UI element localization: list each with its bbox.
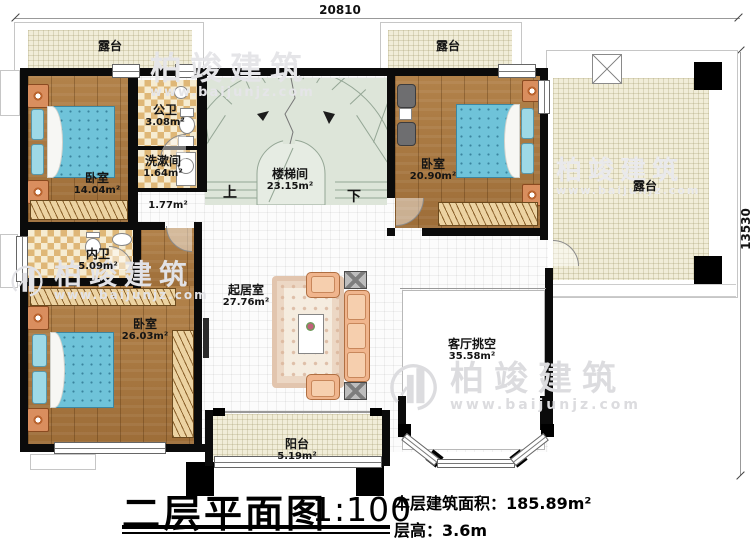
- door-stub: [213, 408, 225, 416]
- bay-window: [437, 459, 515, 468]
- stair-up-label: 上: [220, 186, 240, 202]
- void-boundary-line: [400, 288, 546, 289]
- side-table: [399, 108, 412, 120]
- room-label-living-room: 起居室 27.76m²: [210, 284, 282, 309]
- wall: [194, 222, 202, 452]
- flue-symbol-icon: [592, 54, 622, 84]
- room-label-terrace-right: 露台: [610, 180, 680, 193]
- window: [175, 64, 195, 78]
- pillow: [31, 144, 44, 175]
- sink: [174, 86, 188, 99]
- wall: [387, 228, 395, 236]
- window: [54, 442, 166, 454]
- wall: [138, 188, 197, 192]
- pillow: [32, 334, 47, 367]
- room-label-balcony: 阳台 5.19m²: [262, 438, 332, 463]
- living-void-floor: [402, 290, 545, 450]
- room-label-bedroom-top-right: 卧室 20.90m²: [398, 158, 468, 183]
- wall: [20, 222, 165, 230]
- sofa-cushion: [347, 294, 366, 320]
- room-label-ensuite-bath: 内卫 5.09m²: [68, 248, 128, 273]
- sink: [112, 233, 132, 246]
- dimension-line-right: [740, 52, 741, 476]
- wall: [197, 76, 207, 192]
- room-label-bedroom-bottom-left: 卧室 26.03m²: [110, 318, 180, 343]
- side-table: [344, 271, 367, 289]
- column: [694, 62, 722, 90]
- room-label-terrace-top-left: 露台: [75, 40, 145, 53]
- nightstand: [27, 408, 49, 432]
- wardrobe: [172, 330, 194, 438]
- flower-decor: [306, 322, 315, 331]
- ground-ledge: [30, 454, 96, 470]
- plan-title: 二层平面图: [122, 483, 327, 538]
- pillow: [521, 108, 534, 139]
- armchair: [397, 84, 416, 108]
- room-label-terrace-top-right: 露台: [413, 40, 483, 53]
- dimension-top-label: 20810: [295, 3, 385, 17]
- pillow: [521, 143, 534, 174]
- door-stub: [370, 408, 382, 416]
- ac-ledge: [0, 70, 20, 116]
- window: [498, 64, 536, 78]
- armchair-cushion: [311, 276, 335, 293]
- room-label-wash-room: 洗漱间 1.64m²: [133, 155, 193, 180]
- wall: [205, 410, 213, 466]
- pillow: [32, 371, 47, 404]
- bed-sheet: [504, 104, 520, 178]
- wardrobe: [438, 202, 538, 226]
- nightstand: [27, 84, 49, 108]
- nightstand: [27, 306, 49, 330]
- terrace-edge-line: [553, 284, 736, 285]
- wardrobe: [30, 288, 176, 306]
- sofa-cushion: [347, 352, 366, 378]
- floor-plan-canvas: 20810 13530: [0, 0, 750, 548]
- room-label-stair-hall: 楼梯间 23.15m²: [250, 168, 330, 193]
- window: [112, 64, 140, 78]
- wardrobe: [30, 200, 128, 220]
- pillow: [31, 109, 44, 140]
- side-table: [344, 382, 367, 400]
- wall: [382, 410, 390, 466]
- terrace-right-floor: [553, 78, 709, 280]
- floor-area-text: 本层建筑面积：185.89m²: [394, 490, 591, 514]
- tv: [203, 318, 209, 358]
- floor-height-text: 层高：3.6m: [394, 517, 487, 541]
- wall: [422, 228, 548, 236]
- column: [694, 256, 722, 284]
- window: [16, 236, 28, 282]
- room-label-bedroom-top-left: 卧室 14.04m²: [62, 172, 132, 197]
- wall: [387, 76, 395, 198]
- dimension-right-label: 13530: [739, 199, 750, 259]
- wall: [133, 230, 141, 288]
- coffee-table: [298, 314, 324, 354]
- room-label-public-bath: 公卫 3.08m²: [135, 104, 195, 129]
- stair-down-label: 下: [344, 190, 364, 206]
- room-label-hallway: 1.77m²: [140, 200, 196, 211]
- title-underline-thin: [122, 532, 390, 534]
- balcony-slide-door: [214, 411, 382, 413]
- terrace-edge-line: [553, 296, 736, 297]
- room-label-living-void: 客厅挑空 35.58m²: [428, 338, 516, 363]
- armchair: [397, 122, 416, 146]
- wall: [128, 76, 138, 222]
- armchair-cushion: [311, 380, 335, 397]
- wall: [20, 68, 395, 76]
- dimension-line-top: [14, 18, 740, 19]
- window: [538, 80, 550, 114]
- sofa-cushion: [347, 323, 366, 349]
- wall: [20, 278, 133, 286]
